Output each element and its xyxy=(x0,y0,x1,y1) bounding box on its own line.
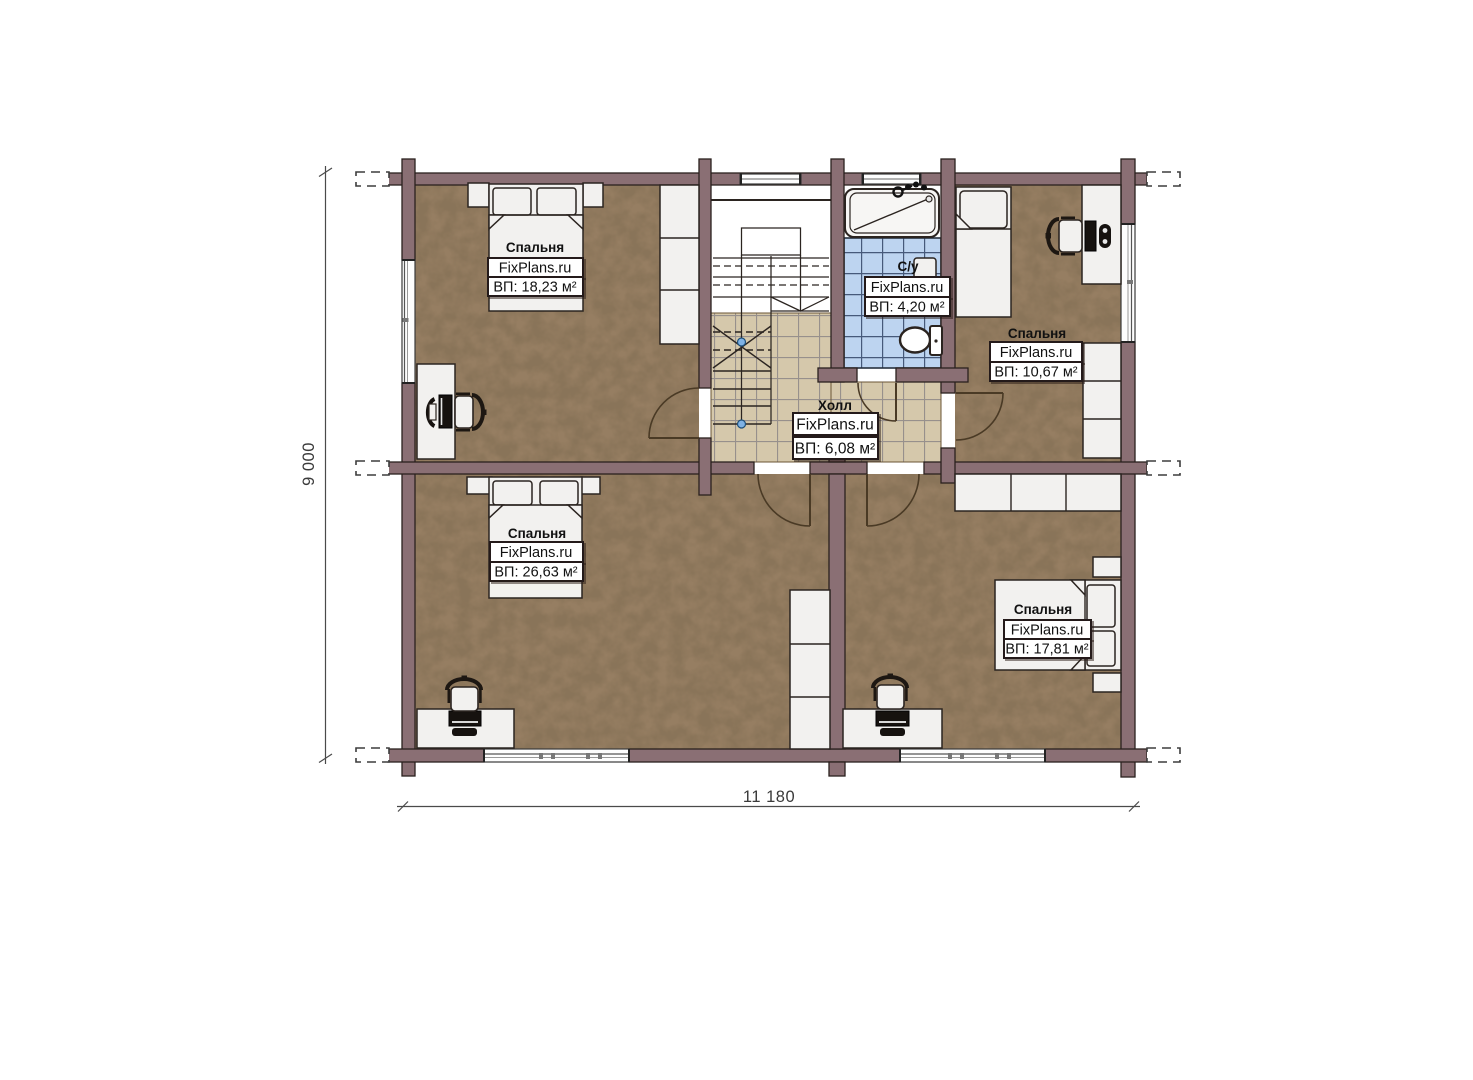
svg-text:Спальня: Спальня xyxy=(1008,326,1066,341)
svg-text:FixPlans.ru: FixPlans.ru xyxy=(1000,345,1073,361)
svg-text:ВП: 26,63 м²: ВП: 26,63 м² xyxy=(494,565,577,581)
svg-text:Спальня: Спальня xyxy=(508,526,566,541)
svg-text:FixPlans.ru: FixPlans.ru xyxy=(796,417,874,434)
svg-text:FixPlans.ru: FixPlans.ru xyxy=(1011,623,1084,639)
svg-text:ВП: 10,67 м²: ВП: 10,67 м² xyxy=(994,365,1077,381)
svg-text:11 180: 11 180 xyxy=(743,788,795,806)
svg-text:ВП: 6,08 м²: ВП: 6,08 м² xyxy=(795,441,875,458)
svg-text:FixPlans.ru: FixPlans.ru xyxy=(499,261,572,277)
svg-text:Спальня: Спальня xyxy=(1014,602,1072,617)
svg-text:Холл: Холл xyxy=(818,398,852,413)
svg-text:9 000: 9 000 xyxy=(300,442,318,486)
svg-text:ВП: 4,20 м²: ВП: 4,20 м² xyxy=(869,300,944,316)
svg-text:С/у: С/у xyxy=(897,259,919,274)
svg-text:ВП: 18,23 м²: ВП: 18,23 м² xyxy=(493,280,576,296)
svg-text:FixPlans.ru: FixPlans.ru xyxy=(871,280,944,296)
svg-text:FixPlans.ru: FixPlans.ru xyxy=(500,545,573,561)
svg-text:ВП: 17,81 м²: ВП: 17,81 м² xyxy=(1005,642,1088,658)
svg-text:Спальня: Спальня xyxy=(506,240,564,255)
